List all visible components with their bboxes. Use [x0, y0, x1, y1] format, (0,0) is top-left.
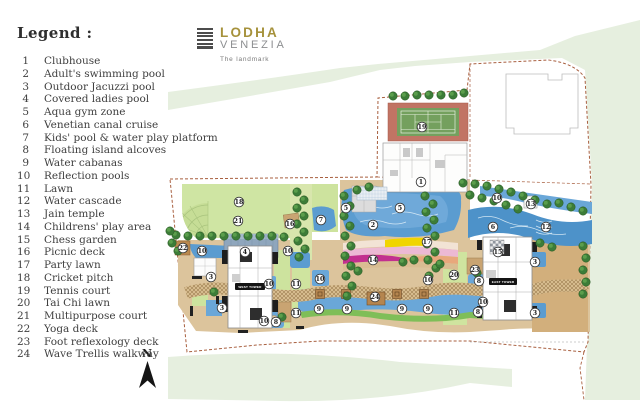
plan-marker-7: 7	[316, 215, 326, 225]
plan-marker-20: 20	[449, 270, 459, 280]
legend-item-number: 18	[17, 272, 29, 285]
svg-text:8: 8	[477, 278, 482, 285]
svg-text:7: 7	[319, 217, 323, 224]
tree-icon	[536, 239, 544, 247]
plan-marker-3: 3	[206, 272, 216, 282]
tree-icon	[340, 192, 348, 200]
legend-item-number: 19	[17, 285, 29, 298]
svg-text:3: 3	[209, 274, 213, 281]
boundary-tail	[580, 352, 584, 400]
tree-icon	[365, 183, 373, 191]
tree-icon	[422, 208, 430, 216]
tree-icon	[429, 200, 437, 208]
plan-marker-10: 10	[259, 316, 269, 326]
legend-item-number: 8	[17, 144, 29, 157]
plan-marker-11: 11	[449, 308, 459, 318]
legend-item-number: 16	[17, 246, 29, 259]
tree-icon	[410, 256, 418, 264]
tree-icon	[567, 203, 575, 211]
legend-item-number: 11	[17, 183, 29, 196]
legend-item-label: Water cascade	[44, 195, 122, 208]
legend-item-label: Chess garden	[44, 234, 117, 247]
legend-item-number: 20	[17, 297, 29, 310]
svg-text:18: 18	[235, 199, 244, 206]
svg-text:11: 11	[292, 281, 301, 288]
legend-list: 1Clubhouse2Adult's swimming pool3Outdoor…	[17, 55, 207, 361]
svg-text:2: 2	[371, 222, 375, 229]
legend-title: Legend :	[17, 24, 207, 42]
tree-icon	[300, 212, 308, 220]
svg-text:15: 15	[494, 249, 503, 256]
plan-marker-3: 3	[217, 303, 227, 313]
tree-icon	[342, 272, 350, 280]
plan-marker-10: 10	[283, 246, 293, 256]
legend-item: 19Tennis court	[17, 285, 207, 298]
svg-text:1: 1	[419, 179, 423, 186]
tree-icon	[423, 224, 431, 232]
tree-icon	[543, 200, 551, 208]
tree-icon	[301, 245, 309, 253]
tree-icon	[495, 185, 503, 193]
water-cabana	[393, 290, 402, 299]
svg-text:23: 23	[471, 267, 480, 274]
legend-item: 23Foot reflexology deck	[17, 336, 207, 349]
tree-icon	[555, 199, 563, 207]
legend-item-label: Kids' pool & water play platform	[44, 132, 218, 145]
svg-text:8: 8	[274, 319, 279, 326]
legend-item: 2Adult's swimming pool	[17, 68, 207, 81]
plan-marker-15: 15	[493, 247, 503, 257]
legend-item: 20Tai Chi lawn	[17, 297, 207, 310]
tree-icon	[232, 232, 240, 240]
legend-item-label: Party lawn	[44, 259, 101, 272]
legend-item: 8Floating island alcoves	[17, 144, 207, 157]
legend-item-label: Picnic deck	[44, 246, 105, 259]
legend-item-number: 17	[17, 259, 29, 272]
legend-item-number: 15	[17, 234, 29, 247]
legend-item: 11Lawn	[17, 183, 207, 196]
svg-text:10: 10	[424, 277, 433, 284]
plan-marker-10: 10	[492, 193, 502, 203]
plan-marker-3: 3	[530, 257, 540, 267]
tree-icon	[460, 89, 468, 97]
tree-icon	[353, 186, 361, 194]
svg-text:19: 19	[418, 124, 427, 131]
tree-icon	[389, 92, 397, 100]
tree-icon	[502, 201, 510, 209]
tree-icon	[210, 288, 218, 296]
plan-marker-12: 12	[541, 222, 551, 232]
legend-item: 14Childrens' play area	[17, 221, 207, 234]
logo-subtitle: VENEZIA	[220, 39, 287, 51]
svg-text:3: 3	[533, 310, 537, 317]
legend-item-number: 13	[17, 208, 29, 221]
tree-icon	[341, 252, 349, 260]
tree-icon	[295, 253, 303, 261]
tree-icon	[431, 248, 439, 256]
plan-marker-24: 24	[370, 292, 380, 302]
svg-text:10: 10	[479, 299, 488, 306]
legend-item-label: Yoga deck	[44, 323, 98, 336]
legend-item-label: Venetian canal cruise	[44, 119, 158, 132]
svg-text:8: 8	[476, 309, 481, 316]
svg-text:5: 5	[398, 205, 402, 212]
water-cabana	[420, 290, 429, 299]
tree-icon	[507, 188, 515, 196]
plan-marker-14: 14	[368, 255, 378, 265]
master-plan-page: WEST TOWER EAST TOWER 191182116755222104…	[0, 0, 640, 419]
plan-marker-21: 21	[233, 216, 243, 226]
plan-marker-5: 5	[341, 203, 351, 213]
legend-item-label: Water cabanas	[44, 157, 122, 170]
legend-item-number: 12	[17, 195, 29, 208]
plan-marker-10: 10	[478, 297, 488, 307]
plan-marker-5: 5	[395, 203, 405, 213]
legend-item-number: 6	[17, 119, 29, 132]
plan-marker-9: 9	[397, 304, 407, 314]
plan-marker-10: 10	[315, 274, 325, 284]
plan-marker-11: 11	[291, 279, 301, 289]
svg-text:10: 10	[493, 195, 502, 202]
adjacent-building-footprint	[506, 74, 578, 134]
tree-icon	[280, 233, 288, 241]
legend-item-label: Tai Chi lawn	[44, 297, 110, 310]
legend-item-number: 14	[17, 221, 29, 234]
tree-icon	[514, 205, 522, 213]
legend-item: 3Outdoor Jacuzzi pool	[17, 81, 207, 94]
legend-item-label: Reflection pools	[44, 170, 129, 183]
logo-text: LODHA VENEZIA The landmark	[220, 26, 287, 63]
tree-icon	[268, 232, 276, 240]
tree-icon	[348, 282, 356, 290]
plan-marker-19: 19	[417, 122, 427, 132]
legend-item: 13Jain temple	[17, 208, 207, 221]
legend-panel: Legend : 1Clubhouse2Adult's swimming poo…	[17, 24, 207, 361]
svg-text:3: 3	[220, 305, 224, 312]
legend-item: 5Aqua gym zone	[17, 106, 207, 119]
tree-icon	[579, 207, 587, 215]
plan-marker-2: 2	[368, 220, 378, 230]
lodha-venezia-logo: LODHA VENEZIA The landmark	[197, 26, 287, 63]
legend-item-number: 9	[17, 157, 29, 170]
plan-marker-17: 17	[422, 237, 432, 247]
tree-icon	[519, 192, 527, 200]
tree-icon	[341, 232, 349, 240]
svg-text:24: 24	[371, 294, 380, 301]
legend-item: 1Clubhouse	[17, 55, 207, 68]
tree-icon	[582, 278, 590, 286]
legend-item: 24Wave Trellis walkway	[17, 348, 207, 361]
legend-item-label: Wave Trellis walkway	[44, 348, 159, 361]
tree-icon	[399, 258, 407, 266]
svg-text:14: 14	[369, 257, 378, 264]
legend-item-label: Lawn	[44, 183, 73, 196]
svg-text:9: 9	[426, 306, 430, 313]
plan-marker-3: 3	[530, 308, 540, 318]
svg-text:11: 11	[292, 310, 301, 317]
logo-bars-icon	[197, 26, 213, 63]
svg-text:17: 17	[423, 239, 432, 246]
legend-item: 21Multipurpose court	[17, 310, 207, 323]
legend-item-number: 24	[17, 348, 29, 361]
tree-icon	[425, 91, 433, 99]
legend-item-number: 1	[17, 55, 29, 68]
plan-marker-18: 18	[234, 197, 244, 207]
plan-marker-9: 9	[423, 304, 433, 314]
legend-item-number: 5	[17, 106, 29, 119]
east-tower-label: EAST TOWER	[492, 280, 515, 284]
legend-item: 10Reflection pools	[17, 170, 207, 183]
legend-item: 16Picnic deck	[17, 246, 207, 259]
tennis-court	[388, 103, 468, 141]
tree-icon	[413, 91, 421, 99]
svg-text:9: 9	[400, 306, 404, 313]
legend-item-label: Adult's swimming pool	[44, 68, 165, 81]
legend-item-number: 2	[17, 68, 29, 81]
legend-item-label: Aqua gym zone	[44, 106, 125, 119]
tree-icon	[424, 256, 432, 264]
plan-marker-11: 11	[291, 308, 301, 318]
legend-item: 12Water cascade	[17, 195, 207, 208]
svg-text:9: 9	[317, 306, 321, 313]
svg-text:10: 10	[265, 281, 274, 288]
tree-icon	[300, 196, 308, 204]
plan-marker-10: 10	[264, 279, 274, 289]
logo-tagline: The landmark	[220, 56, 287, 63]
legend-item: 18Cricket pitch	[17, 272, 207, 285]
tree-icon	[421, 192, 429, 200]
west-tower-label: WEST TOWER	[238, 285, 262, 289]
tree-icon	[208, 232, 216, 240]
tree-icon	[483, 182, 491, 190]
logo-title: LODHA	[220, 26, 287, 39]
plan-marker-8: 8	[474, 276, 484, 286]
svg-text:4: 4	[243, 249, 248, 256]
tree-icon	[256, 232, 264, 240]
legend-item: 4Covered ladies pool	[17, 93, 207, 106]
legend-item-label: Covered ladies pool	[44, 93, 149, 106]
tree-icon	[347, 242, 355, 250]
legend-item-number: 3	[17, 81, 29, 94]
tree-icon	[466, 191, 474, 199]
plan-marker-4: 4	[240, 247, 250, 257]
legend-item-label: Cricket pitch	[44, 272, 113, 285]
plan-marker-9: 9	[342, 304, 352, 314]
svg-text:10: 10	[316, 276, 325, 283]
tree-icon	[401, 92, 409, 100]
svg-text:6: 6	[491, 224, 496, 231]
svg-text:3: 3	[533, 259, 537, 266]
tree-icon	[582, 254, 590, 262]
tree-icon	[579, 242, 587, 250]
plan-marker-8: 8	[473, 307, 483, 317]
tree-icon	[548, 243, 556, 251]
plan-marker-23: 23	[470, 265, 480, 275]
tree-icon	[431, 232, 439, 240]
tree-icon	[436, 260, 444, 268]
svg-text:13: 13	[527, 201, 536, 208]
legend-item-number: 10	[17, 170, 29, 183]
plan-marker-13: 13	[526, 199, 536, 209]
svg-text:16: 16	[286, 221, 295, 228]
legend-item-label: Floating island alcoves	[44, 144, 166, 157]
legend-item: 6Venetian canal cruise	[17, 119, 207, 132]
legend-item-label: Tennis court	[44, 285, 110, 298]
svg-text:9: 9	[345, 306, 349, 313]
legend-item: 22Yoga deck	[17, 323, 207, 336]
plan-marker-1: 1	[416, 177, 426, 187]
svg-text:5: 5	[344, 205, 348, 212]
legend-item-number: 22	[17, 323, 29, 336]
tree-icon	[459, 179, 467, 187]
legend-item-label: Childrens' play area	[44, 221, 151, 234]
tree-icon	[300, 228, 308, 236]
legend-item: 7Kids' pool & water play platform	[17, 132, 207, 145]
svg-text:10: 10	[260, 318, 269, 325]
tree-icon	[293, 188, 301, 196]
legend-item-label: Multipurpose court	[44, 310, 147, 323]
tree-icon	[449, 91, 457, 99]
plan-marker-16: 16	[285, 219, 295, 229]
tree-icon	[294, 237, 302, 245]
svg-text:10: 10	[284, 248, 293, 255]
tree-icon	[244, 232, 252, 240]
tree-icon	[293, 204, 301, 212]
tree-icon	[343, 292, 351, 300]
tree-icon	[437, 91, 445, 99]
tree-icon	[471, 180, 479, 188]
svg-text:12: 12	[542, 224, 551, 231]
tree-icon	[354, 267, 362, 275]
tree-icon	[478, 194, 486, 202]
plan-marker-10: 10	[423, 275, 433, 285]
water-cabana	[316, 290, 325, 299]
legend-item-label: Clubhouse	[44, 55, 100, 68]
legend-item-label: Outdoor Jacuzzi pool	[44, 81, 155, 94]
legend-item-label: Foot reflexology deck	[44, 336, 158, 349]
tree-icon	[220, 232, 228, 240]
legend-item-number: 23	[17, 336, 29, 349]
tree-icon	[579, 266, 587, 274]
plan-marker-6: 6	[488, 222, 498, 232]
svg-text:20: 20	[450, 272, 459, 279]
legend-item: 9Water cabanas	[17, 157, 207, 170]
legend-item-number: 4	[17, 93, 29, 106]
tree-icon	[346, 222, 354, 230]
svg-text:11: 11	[450, 310, 459, 317]
tree-icon	[430, 216, 438, 224]
legend-item-number: 21	[17, 310, 29, 323]
tree-icon	[347, 262, 355, 270]
plan-marker-9: 9	[314, 304, 324, 314]
svg-text:21: 21	[234, 218, 243, 225]
legend-item-label: Jain temple	[44, 208, 105, 221]
legend-item-number: 7	[17, 132, 29, 145]
tree-icon	[579, 290, 587, 298]
plan-marker-8: 8	[271, 317, 281, 327]
east-tower: EAST TOWER	[477, 237, 537, 320]
legend-item: 15Chess garden	[17, 234, 207, 247]
legend-item: 17Party lawn	[17, 259, 207, 272]
